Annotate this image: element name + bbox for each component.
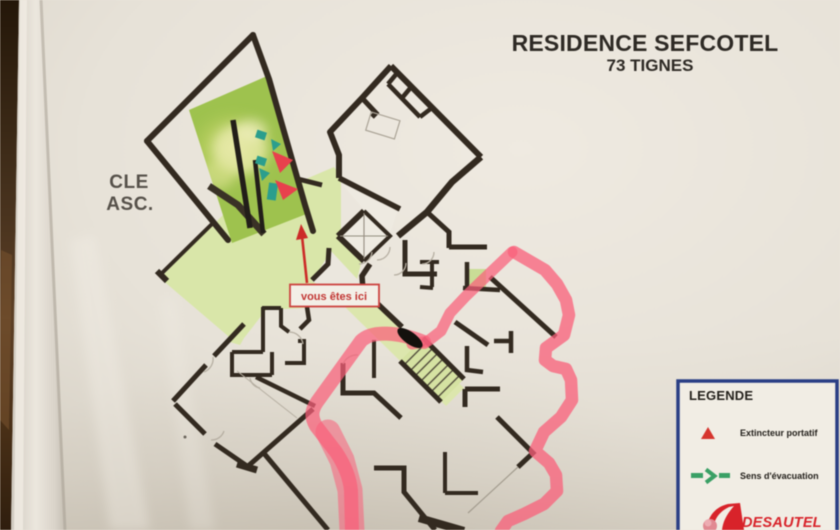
- svg-text:LEGENDE: LEGENDE: [689, 388, 753, 403]
- svg-text:73 TIGNES: 73 TIGNES: [607, 56, 694, 75]
- svg-text:ASC.: ASC.: [106, 194, 153, 215]
- svg-text:vous êtes ici: vous êtes ici: [301, 291, 367, 303]
- svg-text:Sens d'évacuation: Sens d'évacuation: [740, 471, 819, 481]
- svg-text:Extincteur portatif: Extincteur portatif: [740, 428, 819, 438]
- svg-text:RESIDENCE SEFCOTEL: RESIDENCE SEFCOTEL: [512, 30, 779, 56]
- svg-text:CLE: CLE: [109, 172, 149, 193]
